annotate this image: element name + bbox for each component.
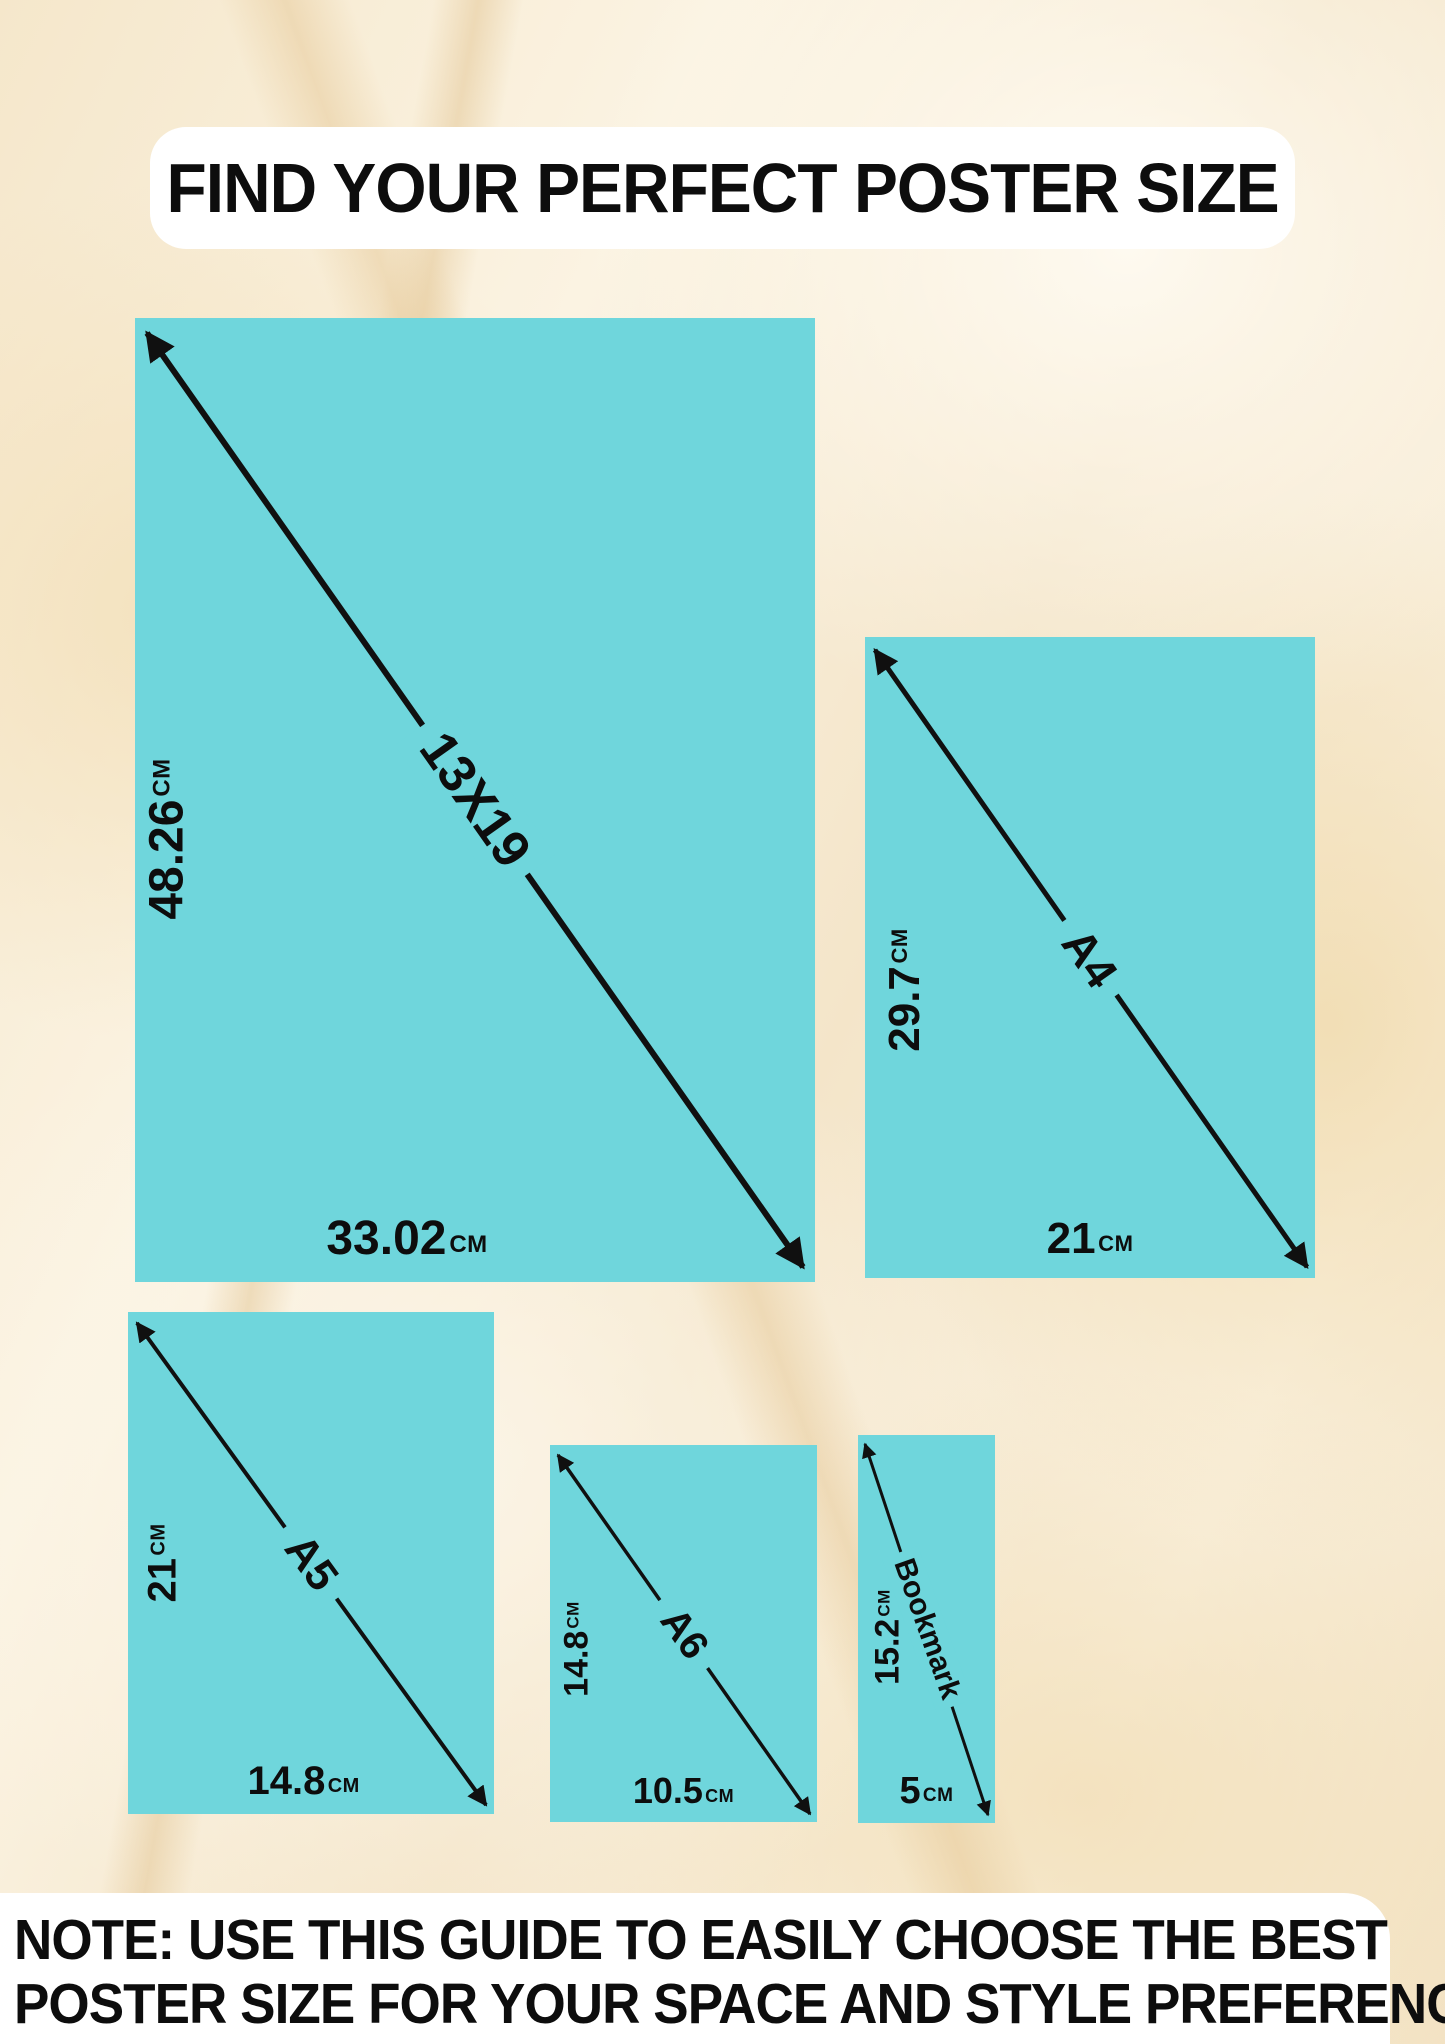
width-unit: CM xyxy=(328,1775,360,1797)
height-dimension-label: 21CM xyxy=(141,1524,186,1603)
height-value: 15.2 xyxy=(869,1618,907,1684)
poster-a5: 21CM A5 14.8CM xyxy=(128,1312,494,1814)
note-text: NOTE: USE THIS GUIDE TO EASILY CHOOSE TH… xyxy=(14,1909,1294,2037)
poster-13x19: 48.26CM 13X19 33.02CM xyxy=(135,318,815,1282)
width-dimension-label: 10.5CM xyxy=(633,1770,734,1812)
width-unit: CM xyxy=(1098,1231,1133,1256)
height-unit: CM xyxy=(563,1601,582,1628)
height-value: 29.7 xyxy=(880,966,929,1052)
height-unit: CM xyxy=(148,758,175,796)
width-dimension-label: 21CM xyxy=(1047,1214,1134,1264)
poster-a6: 14.8CM A6 10.5CM xyxy=(550,1445,817,1822)
width-unit: CM xyxy=(923,1785,954,1806)
height-dimension-label: 14.8CM xyxy=(558,1601,597,1697)
width-dimension-label: 5CM xyxy=(900,1770,954,1813)
height-unit: CM xyxy=(874,1589,893,1616)
width-value: 5 xyxy=(900,1770,921,1812)
width-value: 33.02 xyxy=(326,1212,446,1265)
width-unit: CM xyxy=(705,1786,734,1806)
note-line-2: POSTER SIZE FOR YOUR SPACE AND STYLE PRE… xyxy=(14,1973,1294,2037)
page-title: FIND YOUR PERFECT POSTER SIZE xyxy=(166,148,1278,228)
poster-a4: 29.7CM A4 21CM xyxy=(865,637,1315,1278)
height-unit: CM xyxy=(148,1524,170,1556)
width-dimension-label: 33.02CM xyxy=(326,1211,487,1266)
note-panel: NOTE: USE THIS GUIDE TO EASILY CHOOSE TH… xyxy=(0,1893,1390,2044)
height-value: 21 xyxy=(141,1558,185,1603)
height-dimension-label: 48.26CM xyxy=(140,758,195,919)
height-value: 48.26 xyxy=(141,799,194,919)
width-value: 21 xyxy=(1047,1214,1096,1263)
width-unit: CM xyxy=(449,1231,487,1258)
height-value: 14.8 xyxy=(558,1630,596,1696)
title-banner: FIND YOUR PERFECT POSTER SIZE xyxy=(150,127,1295,249)
height-unit: CM xyxy=(887,928,912,963)
poster-bookmark: 15.2CM Bookmark 5CM xyxy=(858,1435,995,1823)
poster-size-guide: FIND YOUR PERFECT POSTER SIZE 48.26CM 13… xyxy=(0,0,1445,2044)
width-value: 10.5 xyxy=(633,1770,703,1811)
height-dimension-label: 29.7CM xyxy=(880,928,930,1051)
width-dimension-label: 14.8CM xyxy=(247,1759,359,1804)
note-line-1: NOTE: USE THIS GUIDE TO EASILY CHOOSE TH… xyxy=(14,1909,1294,1973)
width-value: 14.8 xyxy=(247,1759,325,1803)
